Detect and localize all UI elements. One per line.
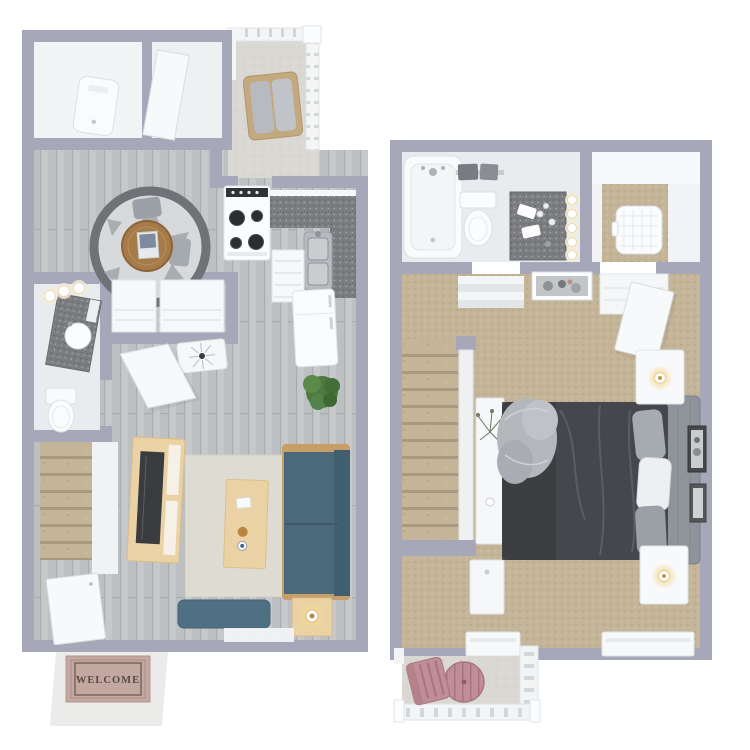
welcome-mat: WELCOME <box>66 656 150 702</box>
dining-table <box>122 221 172 271</box>
kitchen-counter <box>270 196 356 228</box>
front-door <box>46 573 106 645</box>
second-vanity-lights <box>565 193 579 262</box>
bed <box>497 396 700 564</box>
tv-console <box>127 437 185 564</box>
coffee-table <box>223 479 268 568</box>
storage-cabinet <box>470 560 504 614</box>
welcome-mat-text: WELCOME <box>76 675 140 686</box>
hall-art-print <box>532 272 592 300</box>
bathtub <box>404 156 462 258</box>
ottoman-bench <box>178 600 270 628</box>
wicker-patio-chair <box>243 71 303 140</box>
range-stove <box>224 186 270 260</box>
bathroom-vanity <box>510 192 566 260</box>
walk-in-closet <box>612 206 662 254</box>
first-floor-plan: WELCOME <box>22 26 368 726</box>
toilet <box>46 388 76 432</box>
second-floor-plan <box>390 140 712 722</box>
water-heater <box>72 75 119 136</box>
sofa <box>282 444 350 600</box>
entry-stoop: WELCOME <box>50 652 168 726</box>
sunburst-clock-decor <box>177 339 228 374</box>
floor-plan-image: WELCOME <box>0 0 750 750</box>
side-table-with-lamp <box>292 598 332 636</box>
second-floor-balcony <box>394 646 540 722</box>
kitchen-sink <box>304 231 332 290</box>
television <box>136 451 165 544</box>
first-floor-staircase <box>40 442 118 574</box>
pink-patio-table <box>444 662 484 702</box>
nightstand-with-lamp-upper <box>636 350 684 404</box>
laundry-basket <box>612 206 662 254</box>
refrigerator <box>292 289 338 367</box>
nightstand-with-lamp-lower <box>640 546 688 604</box>
